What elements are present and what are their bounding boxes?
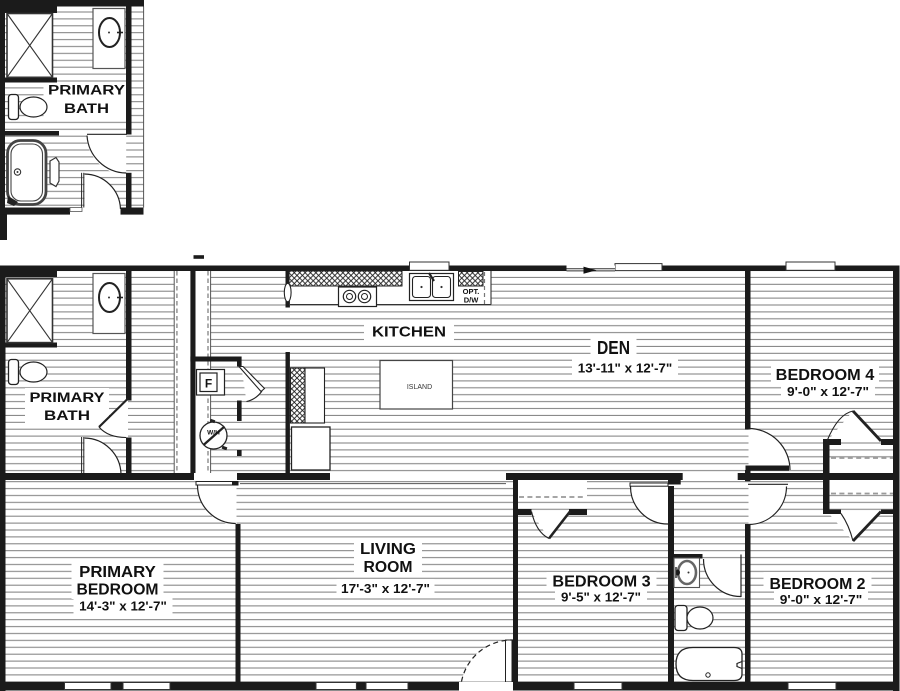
svg-text:ISLAND: ISLAND [407,384,432,391]
svg-text:BEDROOM 4: BEDROOM 4 [776,367,875,384]
svg-text:PRIMARY: PRIMARY [30,390,105,405]
svg-text:KITCHEN: KITCHEN [372,323,446,340]
svg-text:9'-0" x 12'-7": 9'-0" x 12'-7" [780,592,863,607]
svg-text:BATH: BATH [64,101,109,116]
svg-text:14'-3" x 12'-7": 14'-3" x 12'-7" [79,598,167,613]
svg-text:9'-5" x 12'-7": 9'-5" x 12'-7" [561,590,641,605]
svg-text:DEN: DEN [597,338,630,358]
svg-text:LIVING: LIVING [360,541,416,558]
svg-text:BEDROOM 2: BEDROOM 2 [770,576,866,593]
svg-text:F: F [205,377,212,391]
svg-text:13'-11" x 12'-7": 13'-11" x 12'-7" [578,361,673,376]
svg-text:W/H: W/H [207,430,220,437]
svg-text:BATH: BATH [44,408,90,423]
svg-text:BEDROOM 3: BEDROOM 3 [552,574,651,591]
svg-text:PRIMARY: PRIMARY [79,564,156,581]
svg-text:9'-0" x 12'-7": 9'-0" x 12'-7" [787,384,869,399]
svg-text:D/W: D/W [464,296,480,305]
svg-text:17'-3" x 12'-7": 17'-3" x 12'-7" [341,581,430,596]
svg-text:PRIMARY: PRIMARY [48,83,125,98]
svg-text:BEDROOM: BEDROOM [77,581,159,598]
svg-text:ROOM: ROOM [364,559,413,576]
